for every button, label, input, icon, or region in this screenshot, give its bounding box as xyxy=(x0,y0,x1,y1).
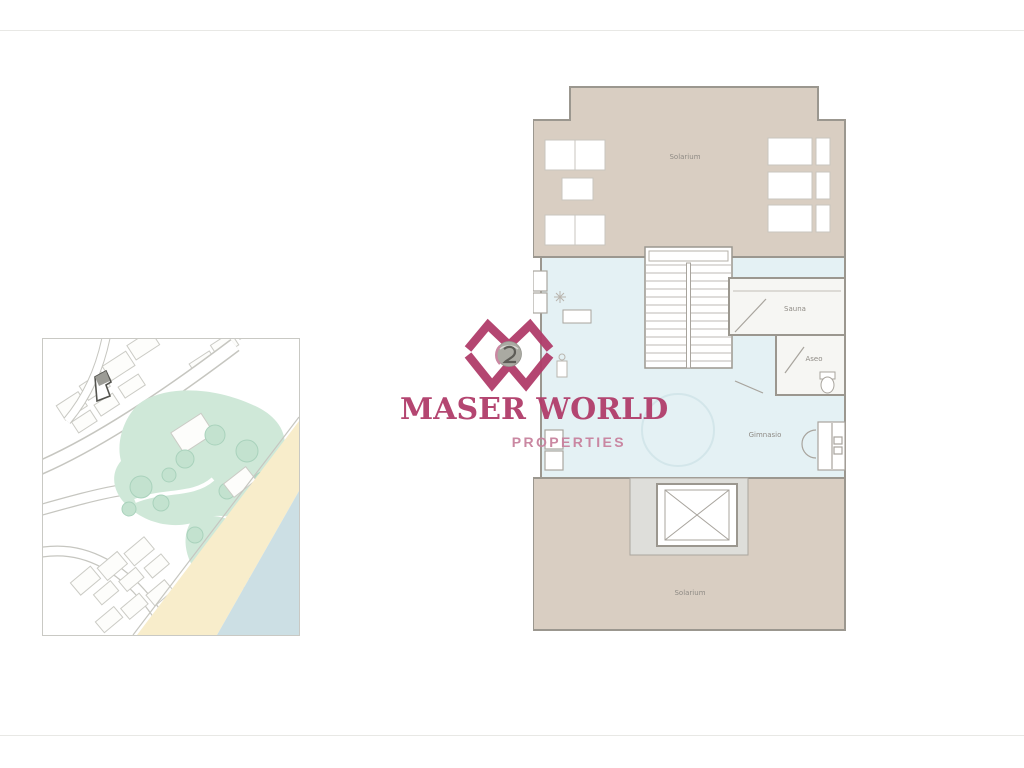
toilet-fixture xyxy=(820,372,835,393)
sun-loungers-right xyxy=(768,138,830,232)
top-terrace: Solarium xyxy=(533,87,845,257)
brand-logo: MASER WORLD PROPERTIES xyxy=(398,303,630,455)
top-divider xyxy=(0,30,1024,31)
gym-label: Gimnasio xyxy=(749,431,782,439)
sauna-label: Sauna xyxy=(784,305,806,313)
bottom-divider xyxy=(0,735,1024,736)
sauna-room: Sauna xyxy=(729,278,845,335)
bottom-terrace: Solarium xyxy=(533,478,845,630)
top-terrace-label: Solarium xyxy=(669,153,700,161)
mw-globe-monogram-icon xyxy=(462,313,556,393)
staircase xyxy=(645,247,732,368)
brand-name: MASER WORLD xyxy=(400,395,630,425)
toilet-room: Aseo xyxy=(776,335,845,395)
elevator xyxy=(657,484,737,546)
site-map xyxy=(42,338,300,636)
toilet-label: Aseo xyxy=(805,355,822,363)
globe-icon xyxy=(496,342,521,367)
brand-subtitle: PROPERTIES xyxy=(398,434,626,450)
listing-sheet: Solarium xyxy=(0,0,1024,768)
bottom-terrace-label: Solarium xyxy=(674,589,705,597)
